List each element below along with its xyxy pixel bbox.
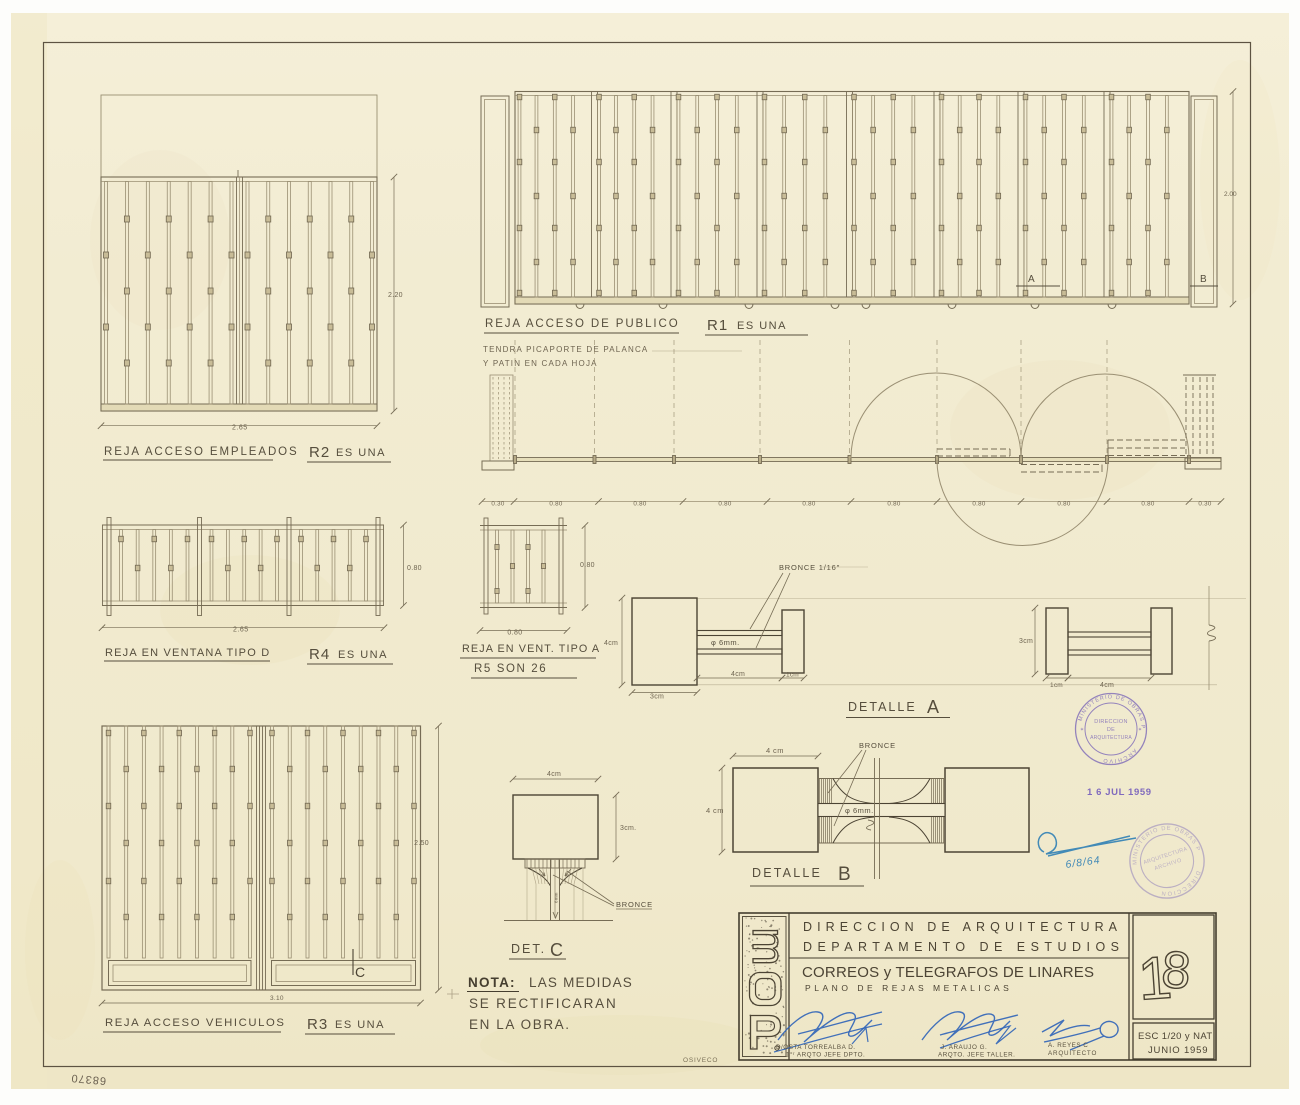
svg-text:B: B [838,864,851,885]
svg-text:B: B [1200,274,1207,285]
svg-text:REJA ACCESO EMPLEADOS: REJA ACCESO EMPLEADOS [104,446,299,458]
svg-text:2.50: 2.50 [414,840,429,847]
svg-text:8: 8 [1160,941,1193,1001]
svg-text:DIRECCION: DIRECCION [1094,719,1128,725]
svg-text:2.20: 2.20 [388,292,403,299]
svg-text:NOTA:: NOTA: [468,975,516,990]
svg-text:ES UNA: ES UNA [335,1019,385,1031]
svg-text:BRONCE 1/16″: BRONCE 1/16″ [779,563,840,572]
svg-text:2.65: 2.65 [232,425,248,432]
svg-text:4cm: 4cm [1100,682,1114,689]
svg-text:4 cm: 4 cm [706,806,724,815]
svg-text:3cm.: 3cm. [620,825,636,832]
svg-text:R5 SON 26: R5 SON 26 [474,663,547,675]
svg-text:Y PATIN EN CADA HOJA: Y PATIN EN CADA HOJA [483,359,598,368]
svg-text:0.80: 0.80 [407,565,422,572]
svg-text:3cm: 3cm [1019,638,1033,645]
svg-text:ES UNA: ES UNA [737,320,787,332]
svg-text:DET.: DET. [511,942,546,956]
svg-text:BRONCE: BRONCE [616,900,653,909]
svg-text:0.80: 0.80 [802,501,816,508]
svg-text:3.10: 3.10 [270,995,284,1002]
svg-text:1cm: 1cm [1050,682,1063,689]
svg-text:6mm: 6mm [554,892,559,903]
svg-text:0.80: 0.80 [633,501,647,508]
svg-text:DETALLE: DETALLE [752,866,822,880]
svg-text:ES UNA: ES UNA [336,447,386,459]
svg-text:0.80: 0.80 [549,501,563,508]
svg-text:JUNIO 1959: JUNIO 1959 [1148,1045,1208,1056]
svg-text:TENDRA PICAPORTE DE PALANCA: TENDRA PICAPORTE DE PALANCA [483,345,648,354]
svg-text:0.80: 0.80 [507,630,522,637]
svg-text:C: C [550,940,563,960]
svg-text:m: m [743,927,795,965]
svg-text:REJA ACCESO VEHICULOS: REJA ACCESO VEHICULOS [105,1017,286,1029]
svg-text:1°ʳ ARQTO JEFE DPTO.: 1°ʳ ARQTO JEFE DPTO. [786,1051,865,1059]
svg-text:✶: ✶ [1138,727,1142,733]
svg-text:REJA EN VENTANA TIPO D: REJA EN VENTANA TIPO D [105,647,270,659]
svg-text:ES UNA: ES UNA [338,649,388,661]
svg-text:3cm: 3cm [650,694,664,701]
svg-text:0.80: 0.80 [580,562,595,569]
svg-text:4cm: 4cm [731,671,745,678]
svg-text:0.80: 0.80 [718,501,732,508]
svg-text:R3: R3 [307,1016,328,1033]
svg-text:R4: R4 [309,646,330,663]
svg-text:D/OSTA TORREALBA D.: D/OSTA TORREALBA D. [776,1044,856,1051]
svg-text:0.80: 0.80 [1057,501,1071,508]
svg-text:CORREOS y TELEGRAFOS DE LINARE: CORREOS y TELEGRAFOS DE LINARES [802,964,1095,981]
svg-text:2.65: 2.65 [233,627,249,634]
svg-text:0.80: 0.80 [887,501,901,508]
svg-text:OSIVECO: OSIVECO [683,1057,718,1064]
svg-text:EN LA OBRA.: EN LA OBRA. [469,1017,571,1032]
svg-text:✶: ✶ [1080,727,1084,733]
svg-text:C: C [355,964,365,980]
svg-text:A. REYES C: A. REYES C [1048,1042,1088,1049]
svg-text:BRONCE: BRONCE [859,741,896,750]
svg-text:1 6 JUL 1959: 1 6 JUL 1959 [1087,787,1152,798]
svg-text:ARQUITECTURA: ARQUITECTURA [1090,735,1132,741]
svg-text:0.30: 0.30 [1198,501,1212,508]
svg-text:φ 6mm.: φ 6mm. [711,638,740,647]
svg-text:A: A [1028,274,1035,285]
svg-text:4cm: 4cm [604,640,618,647]
svg-text:1cm: 1cm [786,672,799,679]
svg-text:J. ARAUJO G.: J. ARAUJO G. [941,1044,987,1051]
svg-text:DE: DE [1107,727,1115,733]
svg-text:R1: R1 [707,317,728,334]
svg-text:REJA ACCESO DE PUBLICO: REJA ACCESO DE PUBLICO [485,318,680,330]
svg-text:PLANO DE REJAS METALICAS: PLANO DE REJAS METALICAS [805,983,1011,993]
svg-text:2.00: 2.00 [1224,191,1237,198]
svg-text:ARQTO. JEFE TALLER.: ARQTO. JEFE TALLER. [938,1052,1015,1059]
svg-text:0.80: 0.80 [972,501,986,508]
svg-text:SE RECTIFICARAN: SE RECTIFICARAN [469,996,618,1011]
svg-text:4cm: 4cm [547,771,561,778]
svg-text:4 cm: 4 cm [766,746,784,755]
svg-text:LAS MEDIDAS: LAS MEDIDAS [529,975,633,990]
svg-text:REJA EN VENT. TIPO A: REJA EN VENT. TIPO A [462,643,600,655]
svg-text:φ 6mm.: φ 6mm. [845,806,874,815]
svg-text:0.80: 0.80 [1141,501,1155,508]
svg-text:DEPARTAMENTO DE ESTUDIOS: DEPARTAMENTO DE ESTUDIOS [803,940,1121,954]
svg-text:ESC 1/20 y NAT: ESC 1/20 y NAT [1138,1031,1213,1042]
svg-text:R2: R2 [309,444,330,461]
svg-text:A: A [927,697,939,717]
svg-text:DETALLE: DETALLE [848,700,917,714]
svg-text:0.30: 0.30 [491,501,505,508]
svg-text:ARQUITECTO: ARQUITECTO [1048,1050,1097,1057]
